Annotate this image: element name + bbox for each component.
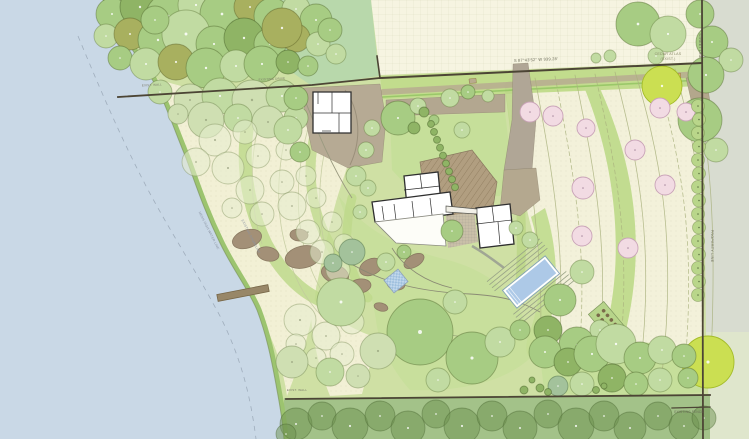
- hedge-tree-dot: [697, 240, 699, 242]
- tree-trunk-dot: [667, 33, 669, 35]
- allee-shrub: [443, 160, 450, 167]
- tree-trunk-dot: [635, 383, 637, 385]
- tree-trunk-dot: [329, 29, 331, 31]
- tree-trunk-dot: [519, 427, 521, 429]
- tree-trunk-dot: [231, 207, 233, 209]
- neighbor-tree: [332, 408, 368, 439]
- tree-trunk-dot: [307, 231, 309, 233]
- tree-trunk-dot: [251, 99, 253, 101]
- survey-label: (EXIST.): [661, 57, 676, 61]
- tree-trunk-dot: [195, 4, 197, 6]
- tree-trunk-dot: [299, 151, 301, 153]
- tree-trunk-dot: [377, 350, 379, 352]
- tree-trunk-dot: [325, 335, 327, 337]
- tree-trunk-dot: [249, 189, 251, 191]
- hedge-tree-dot: [697, 186, 699, 188]
- tree-trunk-dot: [267, 121, 269, 123]
- tree-trunk-dot: [591, 353, 593, 355]
- tree-trunk-dot: [581, 235, 583, 237]
- tree-trunk-dot: [185, 33, 188, 36]
- survey-label: STREET LINE: [698, 33, 702, 59]
- tree-canopy: [536, 384, 544, 392]
- tree-trunk-dot: [355, 175, 357, 177]
- tree-trunk-dot: [340, 301, 343, 304]
- tree-trunk-dot: [529, 239, 531, 241]
- tree-trunk-dot: [315, 357, 317, 359]
- site-plan-canvas: S 87°43'52" W 939.28'CEDAR ATLAS(EXIST.)…: [0, 0, 749, 439]
- tree-trunk-dot: [659, 379, 661, 381]
- tree-trunk-dot: [261, 213, 263, 215]
- tree-trunk-dot: [403, 251, 405, 253]
- tree-trunk-dot: [281, 27, 283, 29]
- tree-trunk-dot: [547, 329, 549, 331]
- tree-trunk-dot: [295, 343, 297, 345]
- hedge-tree-dot: [698, 254, 700, 256]
- survey-label: CEDAR ATLAS: [655, 52, 682, 56]
- tree-trunk-dot: [205, 67, 207, 69]
- tree-trunk-dot: [454, 301, 456, 303]
- tree-trunk-dot: [437, 379, 439, 381]
- tree-trunk-dot: [661, 85, 663, 87]
- tree-trunk-dot: [529, 111, 531, 113]
- tree-trunk-dot: [634, 149, 636, 151]
- tree-trunk-dot: [467, 91, 469, 93]
- tree-trunk-dot: [237, 117, 239, 119]
- tree-trunk-dot: [261, 63, 263, 65]
- tree-trunk-dot: [195, 161, 197, 163]
- tree-trunk-dot: [227, 167, 229, 169]
- tree-trunk-dot: [711, 41, 713, 43]
- tree-trunk-dot: [285, 433, 287, 435]
- tree-trunk-dot: [603, 415, 605, 417]
- tree-trunk-dot: [515, 227, 517, 229]
- tree-trunk-dot: [687, 377, 689, 379]
- tree-trunk-dot: [139, 6, 141, 8]
- hedge-tree-dot: [698, 119, 700, 121]
- hedge-tree-dot: [698, 200, 700, 202]
- tree-canopy: [408, 122, 420, 134]
- tree-trunk-dot: [365, 149, 367, 151]
- tree-trunk-dot: [559, 299, 561, 301]
- tree-trunk-dot: [145, 63, 147, 65]
- tree-trunk-dot: [683, 425, 685, 427]
- tree-canopy: [529, 377, 535, 383]
- tree-trunk-dot: [315, 19, 317, 21]
- tree-trunk-dot: [295, 8, 297, 10]
- tree-trunk-dot: [585, 127, 587, 129]
- tree-trunk-dot: [611, 377, 613, 379]
- parked-vehicle: [469, 78, 476, 83]
- tree-trunk-dot: [305, 175, 307, 177]
- tree-trunk-dot: [664, 184, 666, 186]
- tree-trunk-dot: [243, 37, 245, 39]
- tree-trunk-dot: [461, 425, 463, 427]
- tree-trunk-dot: [379, 415, 381, 417]
- tree-trunk-dot: [581, 271, 583, 273]
- tree-trunk-dot: [111, 13, 113, 15]
- tree-trunk-dot: [281, 95, 283, 97]
- tree-trunk-dot: [627, 247, 629, 249]
- tree-trunk-dot: [451, 230, 453, 232]
- tree-canopy: [482, 90, 494, 102]
- tree-canopy: [604, 50, 616, 62]
- tree-trunk-dot: [321, 415, 323, 417]
- tree-trunk-dot: [281, 181, 283, 183]
- hedge-tree-dot: [697, 132, 699, 134]
- building-guest-house: [476, 204, 514, 248]
- tree-trunk-dot: [657, 415, 659, 417]
- allee-shrub: [449, 176, 456, 183]
- survey-label: EXIST. WALL: [287, 388, 307, 392]
- tree-canopy: [601, 383, 607, 389]
- neighbor-tree: [276, 424, 296, 439]
- hedge-tree-dot: [698, 281, 700, 283]
- tree-trunk-dot: [285, 149, 287, 151]
- tree-trunk-dot: [435, 413, 437, 415]
- tree-trunk-dot: [295, 97, 297, 99]
- tree-trunk-dot: [295, 423, 297, 425]
- tree-trunk-dot: [299, 319, 301, 321]
- allee-shrub: [437, 144, 444, 151]
- tree-trunk-dot: [351, 251, 353, 253]
- tree-trunk-dot: [189, 99, 191, 101]
- site-plan: S 87°43'52" W 939.28'CEDAR ATLAS(EXIST.)…: [0, 0, 749, 439]
- tree-trunk-dot: [599, 329, 601, 331]
- tree-canopy: [593, 387, 600, 394]
- tree-trunk-dot: [105, 35, 107, 37]
- tree-trunk-dot: [417, 105, 419, 107]
- allee-shrub: [446, 168, 453, 175]
- tree-trunk-dot: [331, 221, 333, 223]
- tree-canopy: [591, 53, 601, 63]
- tree-trunk-dot: [397, 117, 399, 119]
- tree-trunk-dot: [575, 425, 577, 427]
- tree-trunk-dot: [175, 61, 177, 63]
- allee-shrub: [431, 128, 438, 135]
- tree-canopy: [520, 386, 528, 394]
- tree-trunk-dot: [629, 427, 631, 429]
- survey-label: PROPERTY LINE: [710, 230, 714, 263]
- tree-trunk-dot: [119, 57, 121, 59]
- tree-trunk-dot: [581, 383, 583, 385]
- tree-trunk-dot: [335, 53, 337, 55]
- tree-trunk-dot: [705, 74, 707, 76]
- tree-trunk-dot: [257, 155, 259, 157]
- hedge-tree-dot: [698, 146, 700, 148]
- tree-trunk-dot: [315, 197, 317, 199]
- tree-trunk-dot: [329, 371, 331, 373]
- tree-trunk-dot: [129, 33, 131, 35]
- tree-trunk-dot: [639, 357, 641, 359]
- tree-trunk-dot: [154, 19, 156, 21]
- tree-canopy: [545, 389, 552, 396]
- hedge-tree-dot: [698, 227, 700, 229]
- tree-trunk-dot: [357, 375, 359, 377]
- tree-trunk-dot: [221, 13, 224, 16]
- allee-shrub: [452, 184, 459, 191]
- tree-trunk-dot: [341, 353, 343, 355]
- tree-trunk-dot: [552, 115, 554, 117]
- tree-canopy: [419, 107, 429, 117]
- allee-shrub: [428, 121, 435, 128]
- hedge-tree-dot: [697, 294, 699, 296]
- tree-trunk-dot: [349, 425, 351, 427]
- tree-trunk-dot: [307, 65, 309, 67]
- neighbor-tree: [614, 412, 646, 439]
- tree-trunk-dot: [321, 251, 323, 253]
- tree-trunk-dot: [385, 261, 387, 263]
- tree-trunk-dot: [683, 355, 685, 357]
- tree-trunk-dot: [661, 349, 663, 351]
- tree-trunk-dot: [249, 6, 251, 8]
- tree-trunk-dot: [407, 427, 409, 429]
- tree-trunk-dot: [547, 413, 549, 415]
- tree-trunk-dot: [706, 360, 709, 363]
- tree-trunk-dot: [367, 187, 369, 189]
- tree-trunk-dot: [205, 119, 207, 121]
- tree-trunk-dot: [359, 211, 361, 213]
- tree-trunk-dot: [730, 59, 732, 61]
- tree-trunk-dot: [499, 341, 501, 343]
- hedge-tree-dot: [697, 159, 699, 161]
- tree-trunk-dot: [470, 356, 473, 359]
- tree-trunk-dot: [317, 43, 319, 45]
- tree-trunk-dot: [715, 149, 717, 151]
- tree-trunk-dot: [244, 131, 246, 133]
- tree-trunk-dot: [449, 97, 451, 99]
- tree-trunk-dot: [519, 329, 521, 331]
- tree-trunk-dot: [371, 127, 373, 129]
- hedge-tree-dot: [697, 213, 699, 215]
- tree-trunk-dot: [287, 61, 289, 63]
- tree-trunk-dot: [177, 113, 179, 115]
- tree-trunk-dot: [418, 330, 422, 334]
- tree-trunk-dot: [659, 107, 661, 109]
- tree-trunk-dot: [291, 361, 293, 363]
- tree-trunk-dot: [159, 91, 161, 93]
- tree-trunk-dot: [157, 39, 159, 41]
- neighbor-tree: [558, 408, 594, 439]
- hedge-tree-dot: [697, 105, 699, 107]
- hedge-tree-dot: [697, 267, 699, 269]
- tree-trunk-dot: [291, 205, 293, 207]
- allee-shrub: [440, 152, 447, 159]
- tree-trunk-dot: [557, 385, 559, 387]
- tree-trunk-dot: [615, 343, 617, 345]
- tree-trunk-dot: [567, 361, 569, 363]
- tree-trunk-dot: [332, 262, 334, 264]
- allee-shrub: [434, 136, 441, 143]
- tree-trunk-dot: [699, 13, 701, 15]
- neighbor-tree: [444, 408, 480, 439]
- tree-trunk-dot: [213, 43, 215, 45]
- tree-trunk-dot: [461, 129, 463, 131]
- property-boundary-line: [702, 0, 703, 439]
- survey-label: EXISTING FENCE: [674, 410, 703, 414]
- tree-trunk-dot: [219, 95, 221, 97]
- tree-trunk-dot: [637, 23, 640, 26]
- tree-trunk-dot: [685, 111, 687, 113]
- hedge-tree-dot: [698, 173, 700, 175]
- tree-trunk-dot: [287, 129, 289, 131]
- tree-trunk-dot: [235, 65, 237, 67]
- tree-trunk-dot: [214, 139, 216, 141]
- tree-trunk-dot: [544, 351, 546, 353]
- tree-trunk-dot: [582, 187, 584, 189]
- tree-trunk-dot: [491, 415, 493, 417]
